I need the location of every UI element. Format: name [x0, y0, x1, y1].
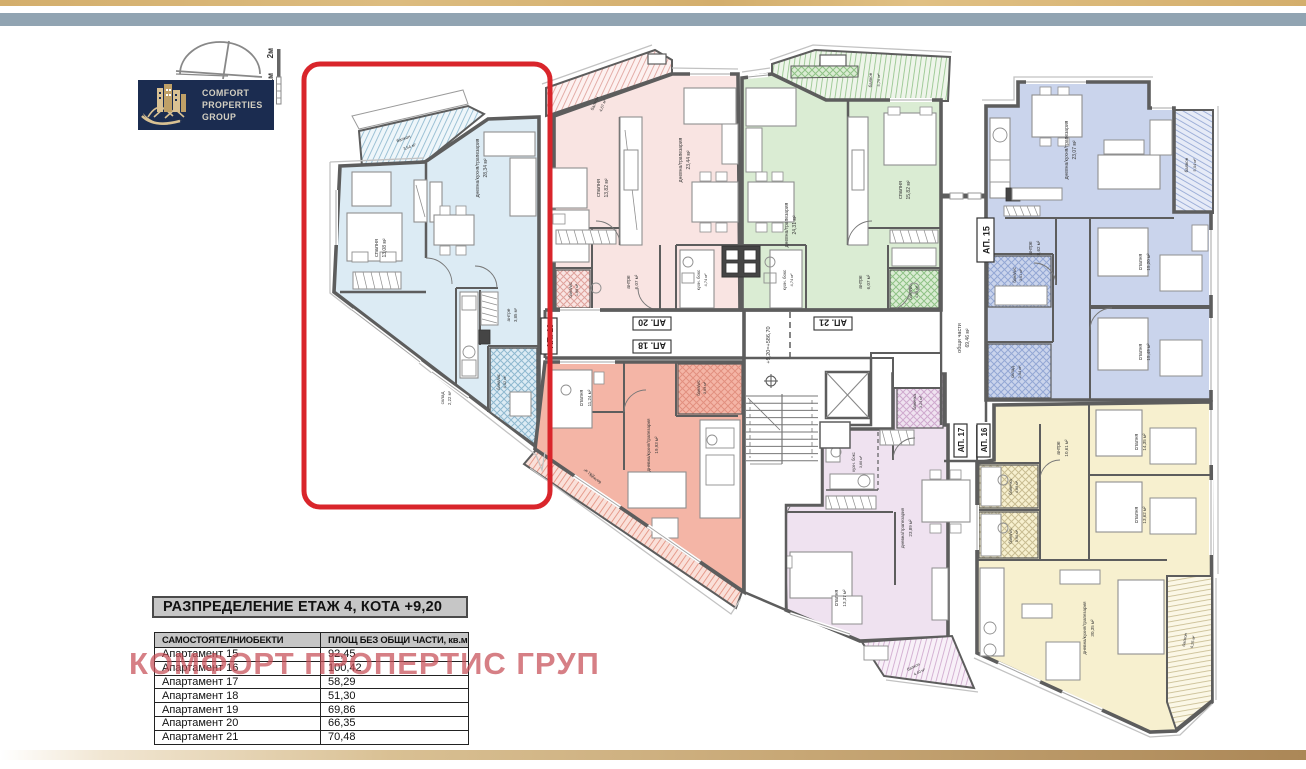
svg-text:баня/wc: баня/wc [1008, 528, 1013, 544]
svg-text:баня/wc: баня/wc [696, 380, 701, 396]
svg-text:3,24 м²: 3,24 м² [919, 395, 923, 408]
svg-text:спалня: спалня [1138, 344, 1144, 361]
svg-text:4,74 м²: 4,74 м² [789, 273, 794, 287]
svg-text:кухн. бокс: кухн. бокс [782, 269, 787, 290]
svg-text:дневна/трапезария: дневна/трапезария [678, 137, 684, 182]
svg-text:баня/wc: баня/wc [1012, 267, 1017, 283]
svg-text:спалня: спалня [1134, 434, 1140, 451]
svg-text:АП. 18: АП. 18 [638, 341, 666, 351]
svg-text:4,89 м²: 4,89 м² [1015, 480, 1019, 493]
svg-text:спалня: спалня [1134, 507, 1140, 524]
svg-text:дневна/трапезария: дневна/трапезария [784, 202, 790, 247]
svg-text:спалня: спалня [579, 390, 585, 407]
svg-text:3,86 м²: 3,86 м² [859, 455, 863, 468]
svg-text:15,82 м²: 15,82 м² [906, 180, 912, 199]
svg-text:24,31 м²: 24,31 м² [792, 215, 798, 234]
svg-text:балкон: балкон [1184, 157, 1189, 172]
svg-text:АП. 21: АП. 21 [819, 318, 847, 328]
svg-text:антре: антре [1056, 441, 1062, 455]
svg-text:дневна/кухня/трапезария: дневна/кухня/трапезария [1082, 601, 1087, 654]
svg-text:спалня: спалня [596, 179, 602, 197]
svg-text:14,35 м²: 14,35 м² [1142, 433, 1147, 451]
svg-text:балкон: балкон [868, 72, 873, 87]
svg-text:склад: склад [1010, 366, 1015, 378]
svg-text:19,93 м²: 19,93 м² [654, 436, 659, 454]
svg-text:АП. 20: АП. 20 [638, 318, 666, 328]
svg-text:13,37 м²: 13,37 м² [842, 589, 847, 607]
svg-text:4,74 м²: 4,74 м² [703, 273, 708, 287]
svg-text:антре: антре [1028, 241, 1034, 255]
svg-text:23,89 м²: 23,89 м² [908, 519, 913, 537]
svg-text:спалня: спалня [898, 181, 904, 199]
svg-text:баничка: баничка [1008, 478, 1013, 494]
svg-text:общи части: общи части [957, 323, 963, 353]
svg-text:1,86 м²: 1,86 м² [575, 283, 579, 296]
svg-text:13,82 м²: 13,82 м² [604, 178, 610, 197]
svg-text:дневна/кухня/трапезария: дневна/кухня/трапезария [1064, 120, 1070, 179]
svg-text:АП. 15: АП. 15 [982, 226, 992, 254]
svg-text:6,07 м²: 6,07 м² [866, 274, 871, 289]
svg-text:2,04 м²: 2,04 м² [1017, 365, 1022, 379]
svg-text:15,20 м²: 15,20 м² [1146, 253, 1151, 271]
svg-text:5,76 м²: 5,76 м² [876, 73, 881, 87]
svg-text:3,61 м²: 3,61 м² [1019, 268, 1023, 281]
svg-text:30,35 м²: 30,35 м² [1090, 619, 1095, 637]
svg-text:баничка: баничка [912, 393, 917, 409]
svg-text:дневна/трапезария: дневна/трапезария [900, 507, 905, 548]
svg-text:15,49 м²: 15,49 м² [1146, 343, 1151, 361]
svg-text:10,61 м²: 10,61 м² [1064, 439, 1069, 457]
svg-text:69,46 м²: 69,46 м² [965, 328, 971, 347]
svg-text:23,07 м²: 23,07 м² [1072, 140, 1078, 159]
svg-text:антре: антре [626, 275, 632, 289]
svg-text:+9,20=+586,70: +9,20=+586,70 [766, 326, 772, 363]
svg-text:кухн. бокс: кухн. бокс [696, 269, 701, 290]
svg-text:спалня: спалня [834, 590, 840, 607]
svg-text:баня/wc: баня/wc [568, 282, 573, 298]
svg-text:3,69 м²: 3,69 м² [703, 381, 707, 394]
svg-text:5,90 м²: 5,90 м² [1015, 529, 1019, 542]
svg-text:кухн. бокс: кухн. бокс [851, 452, 856, 471]
svg-text:23,44 м²: 23,44 м² [686, 150, 692, 169]
svg-text:11,24 м²: 11,24 м² [587, 389, 592, 406]
svg-text:6,07 м²: 6,07 м² [634, 274, 639, 289]
svg-text:спалня: спалня [1138, 254, 1144, 271]
svg-text:8,62 м²: 8,62 м² [1036, 240, 1041, 255]
svg-text:5,04 м²: 5,04 м² [1192, 158, 1197, 172]
svg-text:АП. 17: АП. 17 [957, 427, 966, 452]
svg-text:13,62 м²: 13,62 м² [1142, 506, 1147, 524]
svg-text:АП. 16: АП. 16 [980, 427, 989, 452]
svg-text:дневна/кухня/трапезария: дневна/кухня/трапезария [646, 418, 651, 471]
svg-text:антре: антре [858, 275, 864, 289]
